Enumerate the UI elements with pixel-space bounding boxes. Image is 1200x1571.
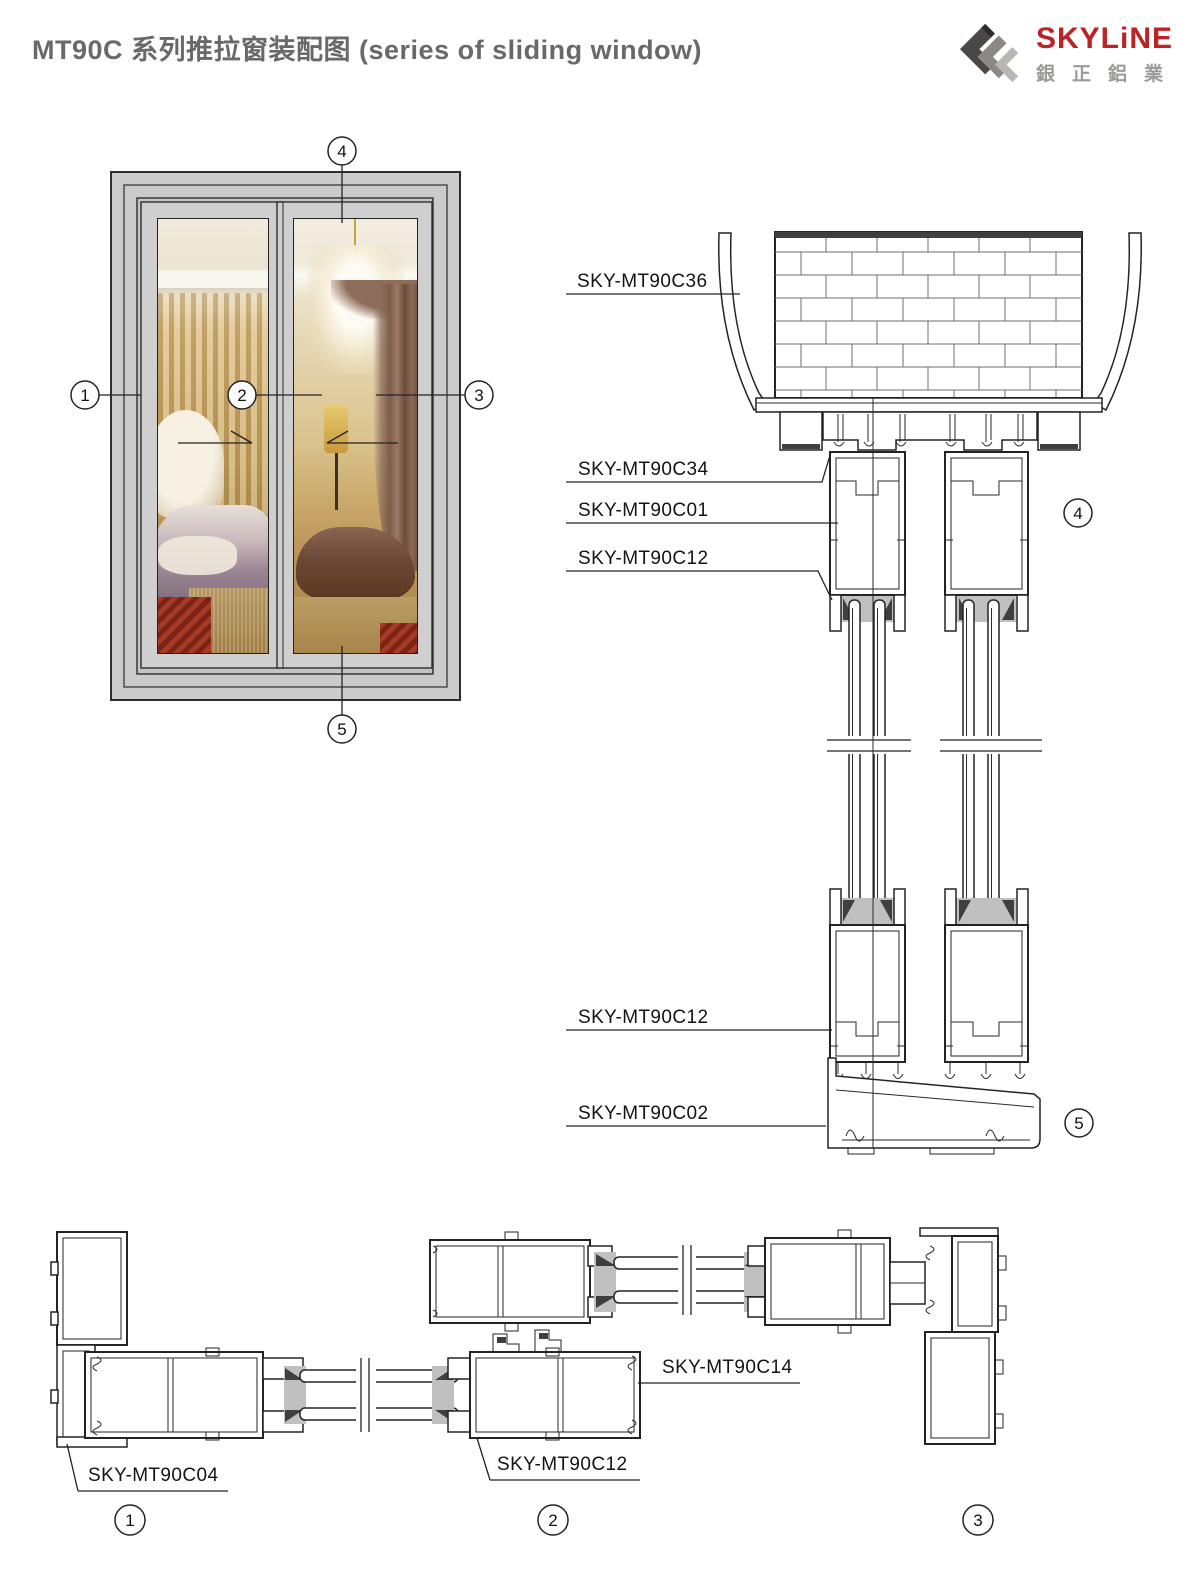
callout-number: 5 <box>337 720 346 739</box>
callout-number: 4 <box>1073 504 1082 523</box>
callout-number: 3 <box>474 386 483 405</box>
part-label-mt90c01: SKY-MT90C01 <box>578 500 708 522</box>
callout-number: 2 <box>237 386 246 405</box>
brand-name: SKYLiNE <box>1036 24 1180 54</box>
part-label-mt90c04: SKY-MT90C04 <box>88 1465 218 1487</box>
callout-number: 5 <box>1074 1114 1083 1133</box>
callout-vsection-5: 5 <box>1065 1109 1093 1137</box>
callout-overlay: 1 2 3 4 5 4 5 1 2 3 <box>0 0 1200 1571</box>
part-label-mt90c14: SKY-MT90C14 <box>662 1357 792 1379</box>
part-label-mt90c02: SKY-MT90C02 <box>578 1103 708 1125</box>
part-label-mt90c36: SKY-MT90C36 <box>577 271 707 293</box>
callout-leader-lines <box>99 165 465 715</box>
callout-elevation-4: 4 <box>328 137 356 165</box>
callout-number: 3 <box>973 1511 982 1530</box>
callout-number: 2 <box>548 1511 557 1530</box>
part-label-mt90c34: SKY-MT90C34 <box>578 459 708 481</box>
callout-number: 1 <box>80 386 89 405</box>
callout-hsection-1: 1 <box>115 1505 145 1535</box>
skyline-logo-icon <box>956 20 1028 86</box>
part-label-mt90c12-top: SKY-MT90C12 <box>578 548 708 570</box>
callout-hsection-3: 3 <box>963 1505 993 1535</box>
skyline-logo: SKYLiNE 銀正鋁業 <box>956 18 1186 90</box>
brand-name-chinese: 銀正鋁業 <box>1036 59 1180 86</box>
part-label-mt90c12-bottom: SKY-MT90C12 <box>578 1007 708 1029</box>
part-label-mt90c12-plan: SKY-MT90C12 <box>497 1454 627 1476</box>
callout-number: 1 <box>125 1511 134 1530</box>
callout-number: 4 <box>337 142 346 161</box>
callout-vsection-4: 4 <box>1064 499 1092 527</box>
callout-elevation-2: 2 <box>228 381 256 409</box>
callout-elevation-5: 5 <box>328 715 356 743</box>
page-title: MT90C 系列推拉窗装配图 (series of sliding window… <box>32 28 702 67</box>
callout-hsection-2: 2 <box>538 1505 568 1535</box>
callout-elevation-3: 3 <box>465 381 493 409</box>
slide-direction-arrows <box>178 431 398 443</box>
callout-elevation-1: 1 <box>71 381 99 409</box>
